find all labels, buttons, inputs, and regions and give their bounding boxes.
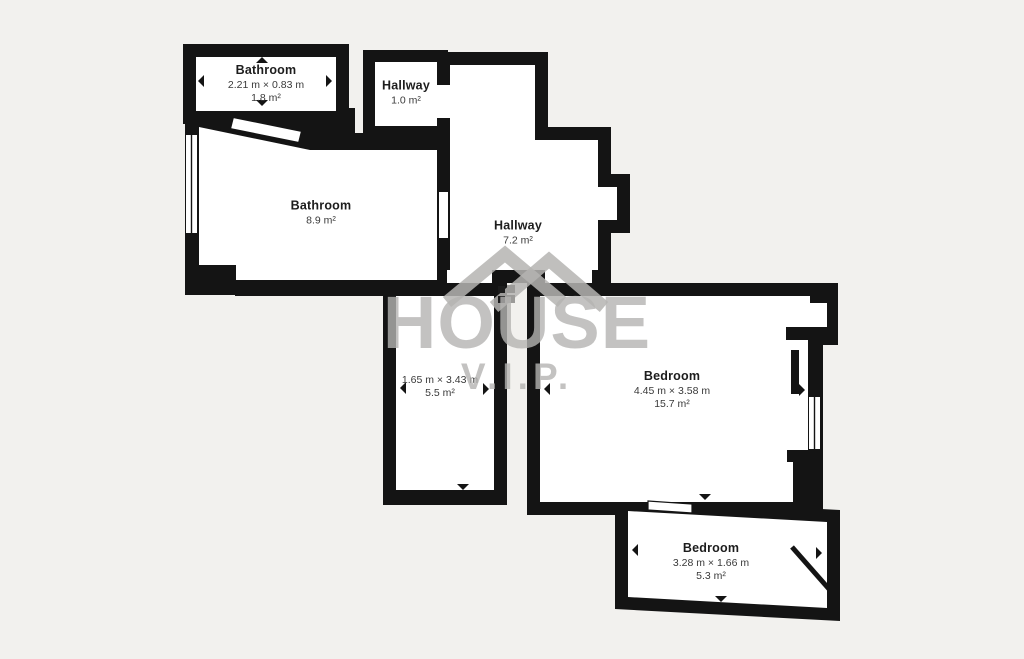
room-name: Bathroom — [291, 199, 352, 215]
room-area: 1.8 m² — [228, 92, 304, 105]
room-area: 8.9 m² — [291, 214, 352, 227]
room-label-bedroom-small: Bedroom 3.28 m × 1.66 m 5.3 m² — [673, 541, 749, 583]
room-label-bedroom-large: Bedroom 4.45 m × 3.58 m 15.7 m² — [634, 369, 710, 411]
floor-plan-drawing — [0, 0, 1024, 659]
house-logo-window-icon — [507, 285, 515, 293]
wall-segment — [535, 52, 548, 153]
room-dimensions: 4.45 m × 3.58 m — [634, 385, 710, 398]
house-logo-window-icon — [507, 295, 515, 303]
room-area: 15.7 m² — [634, 398, 710, 411]
room-dimensions: 1.65 m × 3.43 m — [402, 374, 478, 387]
room-name: Bathroom — [228, 63, 304, 79]
room-dimensions: 2.21 m × 0.83 m — [228, 79, 304, 92]
room-name: Bedroom — [673, 541, 749, 557]
room-dimensions: 3.28 m × 1.66 m — [673, 557, 749, 570]
room-area: 5.5 m² — [402, 387, 478, 400]
house-logo-window-icon — [498, 286, 505, 293]
room-area: 1.0 m² — [382, 94, 430, 107]
room-name: Hallway — [382, 79, 430, 95]
wall-segment — [437, 52, 548, 65]
room-label-hallway-large: Hallway 7.2 m² — [494, 219, 542, 248]
floor-plan: Bathroom 2.21 m × 0.83 m 1.8 m² Hallway … — [0, 0, 1024, 659]
wall-segment — [787, 450, 820, 462]
room-area: 7.2 m² — [494, 234, 542, 247]
room-name: Hallway — [494, 219, 542, 235]
room-name: Bedroom — [634, 369, 710, 385]
room-label-hallway-small: Hallway 1.0 m² — [382, 79, 430, 108]
wall-segment — [791, 350, 799, 394]
wall-segment — [786, 327, 827, 340]
door-opening — [437, 85, 450, 118]
house-logo-window-icon — [498, 296, 505, 303]
room-label-unnamed: 1.65 m × 3.43 m 5.5 m² — [402, 374, 478, 400]
room-area: 5.3 m² — [673, 570, 749, 583]
room-label-bathroom-small: Bathroom 2.21 m × 0.83 m 1.8 m² — [228, 63, 304, 105]
door-opening — [439, 192, 448, 238]
room-label-bathroom-large: Bathroom 8.9 m² — [291, 199, 352, 228]
